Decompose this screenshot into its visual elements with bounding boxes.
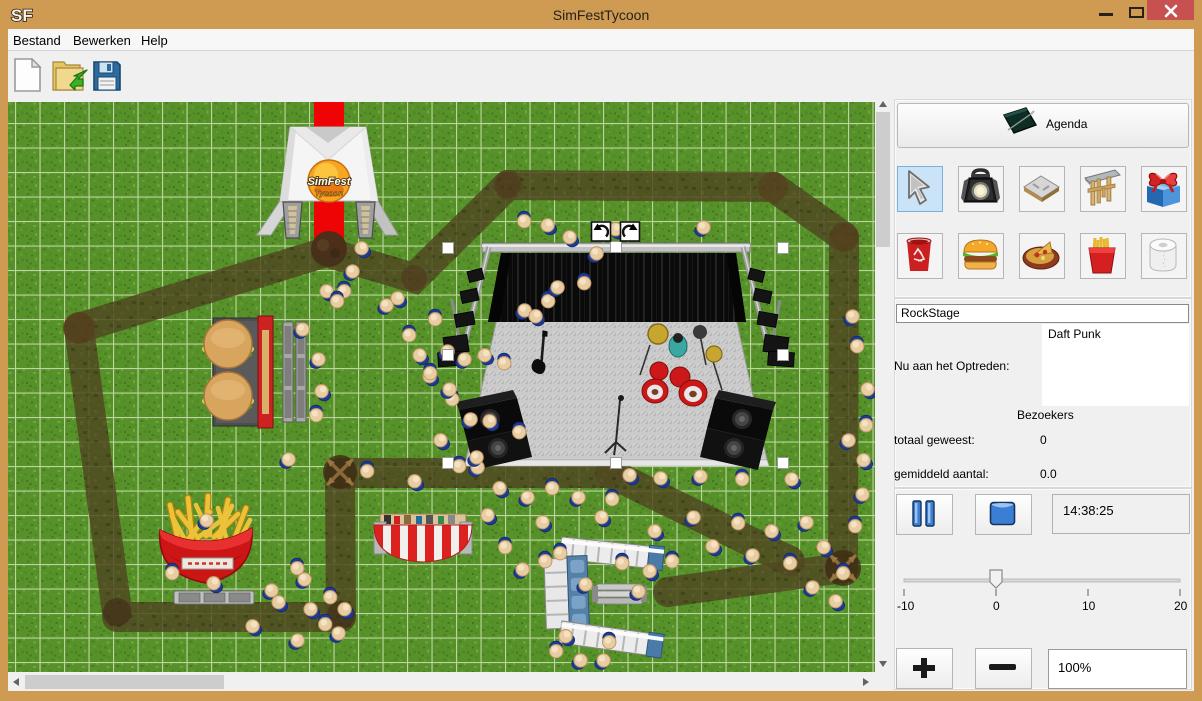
- svg-text:SimFest: SimFest: [308, 176, 352, 188]
- svg-text:0: 0: [993, 599, 1000, 613]
- svg-text:Tycoon: Tycoon: [315, 189, 343, 198]
- svg-text:-10: -10: [897, 599, 915, 613]
- svg-text:20: 20: [1174, 599, 1188, 613]
- svg-text:10: 10: [1082, 599, 1096, 613]
